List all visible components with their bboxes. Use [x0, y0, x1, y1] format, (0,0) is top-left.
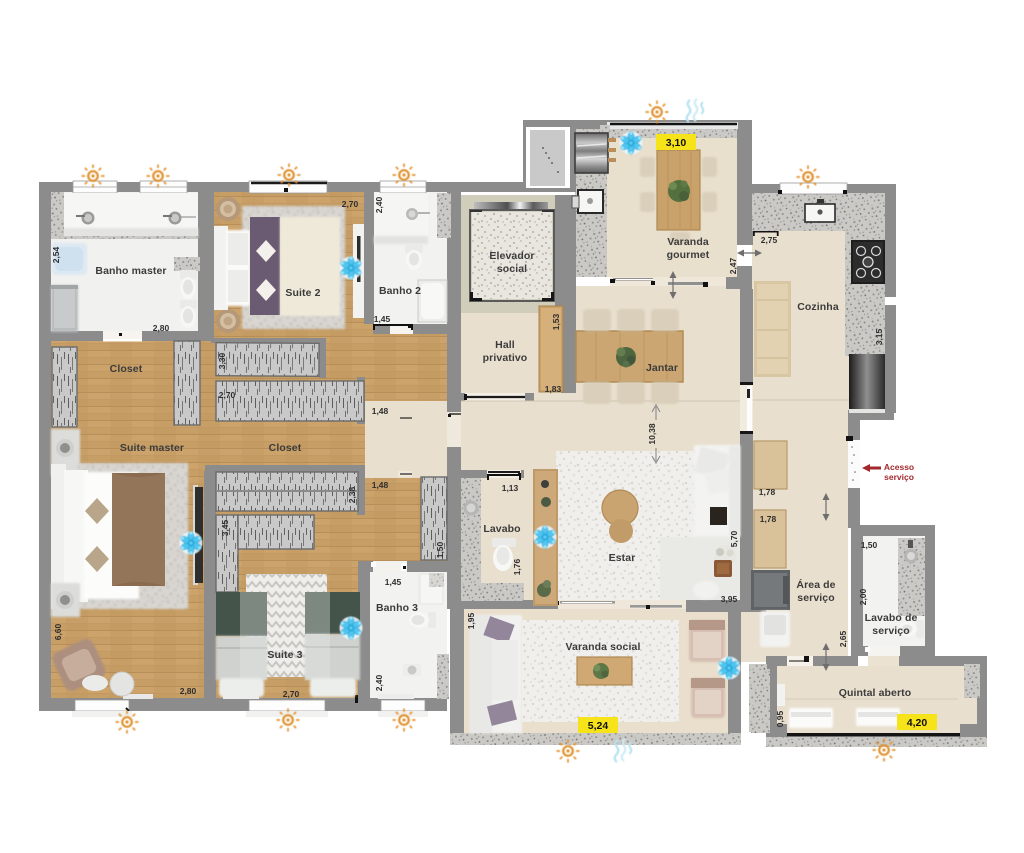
svg-text:Banho master: Banho master: [95, 265, 166, 277]
svg-text:Suite 2: Suite 2: [285, 287, 320, 299]
svg-text:Varanda: Varanda: [667, 236, 709, 248]
svg-text:3,30: 3,30: [217, 352, 227, 369]
svg-text:2,40: 2,40: [374, 674, 384, 691]
svg-text:social: social: [497, 263, 527, 275]
svg-text:6,60: 6,60: [53, 623, 63, 640]
svg-text:Closet: Closet: [110, 363, 143, 375]
svg-text:serviço: serviço: [872, 625, 909, 637]
svg-text:privativo: privativo: [483, 352, 528, 364]
svg-text:3,15: 3,15: [874, 328, 884, 345]
svg-text:Cozinha: Cozinha: [797, 301, 839, 313]
svg-text:5,24: 5,24: [588, 720, 609, 732]
svg-text:serviço: serviço: [797, 592, 834, 604]
svg-text:2,38: 2,38: [347, 486, 357, 503]
svg-text:2,75: 2,75: [761, 235, 778, 245]
svg-text:1,53: 1,53: [551, 313, 561, 330]
svg-text:1,83: 1,83: [545, 384, 562, 394]
svg-text:1,50: 1,50: [435, 541, 445, 558]
svg-text:2,47: 2,47: [728, 257, 738, 274]
svg-text:Lavabo: Lavabo: [483, 523, 520, 535]
svg-text:5,70: 5,70: [729, 530, 739, 547]
svg-text:Jantar: Jantar: [646, 362, 678, 374]
svg-text:2,80: 2,80: [153, 323, 170, 333]
svg-text:2,00: 2,00: [858, 588, 868, 605]
svg-text:Elevador: Elevador: [489, 250, 534, 262]
svg-text:2,70: 2,70: [342, 199, 359, 209]
svg-text:Área de: Área de: [796, 578, 835, 591]
svg-text:gourmet: gourmet: [667, 249, 710, 261]
svg-text:Lavabo de: Lavabo de: [865, 612, 918, 624]
svg-text:Suite master: Suite master: [120, 442, 184, 454]
svg-text:1,50: 1,50: [861, 540, 878, 550]
svg-text:2,65: 2,65: [838, 630, 848, 647]
svg-text:2,70: 2,70: [219, 390, 236, 400]
svg-text:10,38: 10,38: [647, 423, 657, 445]
svg-text:1,48: 1,48: [372, 406, 389, 416]
svg-text:1,13: 1,13: [502, 483, 519, 493]
svg-text:Closet: Closet: [269, 442, 302, 454]
svg-text:Banho 2: Banho 2: [379, 285, 421, 297]
svg-text:2,54: 2,54: [51, 246, 61, 263]
svg-text:Suite 3: Suite 3: [267, 649, 302, 661]
svg-text:Banho 3: Banho 3: [376, 602, 418, 614]
svg-text:1,48: 1,48: [372, 480, 389, 490]
svg-text:4,20: 4,20: [907, 717, 928, 729]
svg-text:Estar: Estar: [609, 552, 636, 564]
svg-text:3,95: 3,95: [721, 594, 738, 604]
svg-text:1,45: 1,45: [374, 314, 391, 324]
svg-text:Acesso: Acesso: [884, 462, 914, 472]
svg-text:3,45: 3,45: [220, 519, 230, 536]
svg-text:3,10: 3,10: [666, 137, 687, 149]
svg-text:Varanda social: Varanda social: [566, 641, 641, 653]
svg-text:Quintal aberto: Quintal aberto: [839, 687, 912, 699]
svg-text:0,95: 0,95: [775, 710, 785, 727]
svg-text:2,70: 2,70: [283, 689, 300, 699]
svg-text:1,76: 1,76: [512, 558, 522, 575]
svg-text:2,80: 2,80: [180, 686, 197, 696]
svg-text:1,78: 1,78: [760, 514, 777, 524]
svg-text:1,45: 1,45: [385, 577, 402, 587]
svg-text:serviço: serviço: [884, 472, 914, 482]
svg-text:2,40: 2,40: [374, 196, 384, 213]
svg-text:1,95: 1,95: [466, 612, 476, 629]
svg-text:1,78: 1,78: [759, 487, 776, 497]
svg-text:Hall: Hall: [495, 339, 515, 351]
